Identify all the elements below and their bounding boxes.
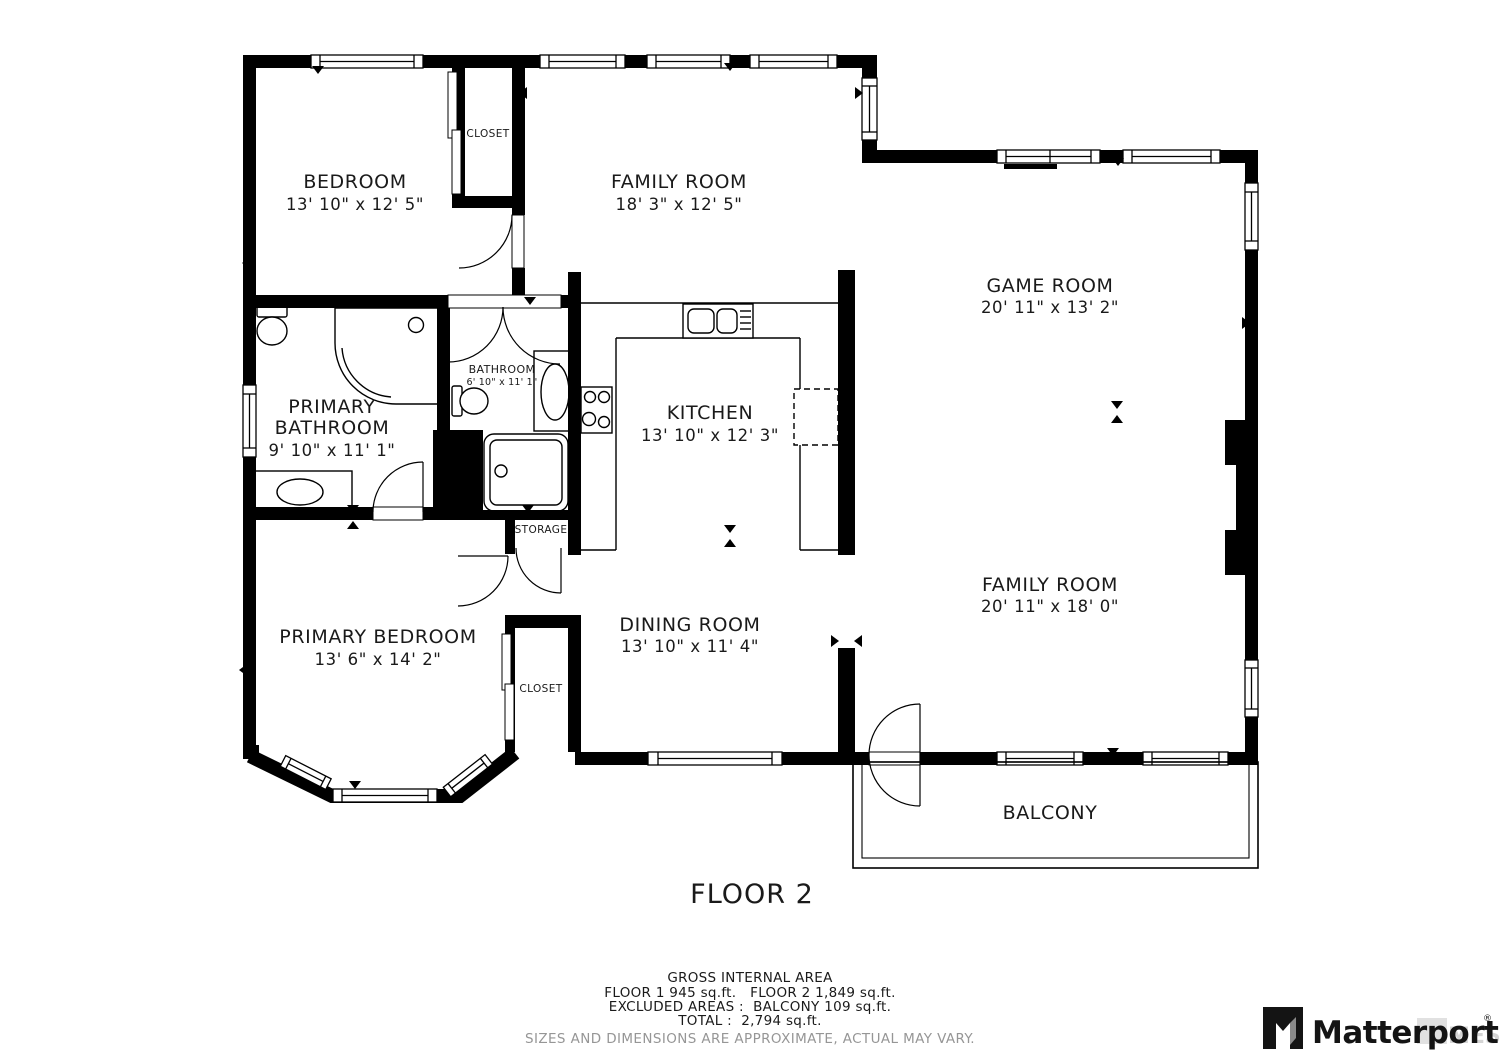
room-dims-game-room: 20' 11" x 13' 2" [981,298,1119,317]
area-summary: GROSS INTERNAL AREA FLOOR 1 945 sq.ft. F… [525,970,975,1047]
slider-panel [505,684,514,740]
room-label-game-room: GAME ROOM [986,275,1113,297]
window [862,78,877,140]
room-label-storage: STORAGE [515,524,568,536]
primary-shower-icon [335,308,438,404]
matterport-logo-icon [1263,1007,1303,1049]
wall-bath-block [433,430,483,520]
room-label-dining-room: DINING ROOM [619,614,760,636]
room-label-family-room-top: FAMILY ROOM [611,171,747,193]
room-dims-bedroom: 13' 10" x 12' 5" [286,195,424,214]
window [1245,183,1258,250]
room-label-bedroom: BEDROOM [303,171,406,193]
matterport-logo-text: Matterport [1312,1015,1499,1051]
slider-panel [502,634,511,690]
floor-label: FLOOR 2 [690,879,814,910]
window [997,752,1083,765]
primary-vanity-icon [252,471,352,512]
sink-basin [688,309,714,333]
arrow-icon [724,539,736,547]
arrow-icon [349,781,361,789]
vanity-sink [541,364,569,420]
floor-plan-page: BEDROOM 13' 10" x 12' 5" FAMILY ROOM 18'… [0,0,1500,1060]
door-opening [869,752,920,765]
room-dims-primary-bathroom: 9' 10" x 11' 1" [269,441,396,460]
room-label-primary-bedroom: PRIMARY BEDROOM [279,626,476,648]
stove-icon [581,387,612,433]
wall-kitchen-family [838,270,855,555]
door-panel [512,215,524,268]
fireplace-notch [1225,465,1236,530]
door-arc-bedroom [459,215,512,268]
arrow-icon [1111,415,1123,423]
arrow-icon [854,635,862,647]
burner [599,392,610,403]
room-dims-family-room-main: 20' 11" x 18' 0" [981,597,1119,616]
bathroom-shower-icon [484,434,568,511]
window [311,55,423,68]
arrow-icon [831,635,839,647]
room-dims-bathroom: 6' 10" x 11' 1" [467,377,538,388]
window [540,55,625,68]
logo-icon-shape [1263,1007,1303,1049]
room-dims-kitchen: 13' 10" x 12' 3" [641,426,779,445]
wall-dining-family [838,648,855,752]
room-dims-primary-bedroom: 13' 6" x 14' 2" [315,650,442,669]
room-label-balcony: BALCONY [1003,802,1098,824]
toilet-bowl [257,317,287,345]
toilet-bowl [460,388,488,414]
window [1123,150,1220,163]
room-labels: BEDROOM 13' 10" x 12' 5" FAMILY ROOM 18'… [269,128,1120,824]
door-arc-bathroom-left [448,307,503,362]
window [243,385,256,457]
window [648,752,782,765]
room-label-bathroom: BATHROOM [469,363,536,376]
kitchen-sink-icon [683,304,753,338]
shower-drain [409,318,424,333]
area-summary-title: GROSS INTERNAL AREA [667,970,833,986]
window [750,55,837,68]
primary-toilet-icon [257,306,287,345]
wall-closet2-top [505,615,581,628]
floor-plan-drawing: BEDROOM 13' 10" x 12' 5" FAMILY ROOM 18'… [0,0,1500,1060]
slider-panel [448,72,457,138]
room-dims-family-room-top: 18' 3" x 12' 5" [616,195,743,214]
bathroom-toilet-icon [452,386,488,416]
area-summary-total: TOTAL : 2,794 sq.ft. [677,1013,821,1029]
arrow-icon [347,521,359,529]
arrow-icon [724,525,736,533]
wall-closet-right-upper [512,55,525,215]
branding: MES Matterport ® [1263,1007,1500,1051]
window [1245,660,1258,717]
sink-basin [717,309,737,333]
burner [599,417,610,428]
slider-panel [452,130,461,194]
room-label-closet-bottom: CLOSET [519,683,562,695]
window [333,789,437,802]
area-summary-disclaimer: SIZES AND DIMENSIONS ARE APPROXIMATE, AC… [525,1031,975,1047]
vanity-sink [277,479,323,505]
wall-primarybath-bottom-stub [423,507,437,520]
wall-storage-left [505,520,515,554]
burner [585,392,596,403]
room-label-family-room-main: FAMILY ROOM [982,574,1118,596]
refrigerator-icon [794,389,838,445]
door-primary-bathroom [373,462,423,512]
room-label-closet-top: CLOSET [466,128,509,140]
room-label-kitchen: KITCHEN [667,402,754,424]
room-dims-dining-room: 13' 10" x 11' 4" [621,637,759,656]
room-label-primary-bathroom-2: BATHROOM [275,417,390,439]
registered-mark: ® [1483,1014,1492,1024]
window [647,55,730,68]
door-opening [373,507,423,520]
door-opening [448,295,561,308]
wall-between-baths [437,295,450,435]
window [1143,752,1228,765]
wall-dining-closet [568,615,581,752]
arrow-icon [1111,401,1123,409]
door-storage [516,548,561,593]
door-hall-primary-bedroom [458,556,508,606]
lintel-bar [1004,164,1057,169]
burner [583,413,596,426]
window [997,150,1100,163]
room-label-primary-bathroom-1: PRIMARY [288,396,375,418]
shower-drain [495,465,507,477]
arrow-icon [312,66,324,74]
